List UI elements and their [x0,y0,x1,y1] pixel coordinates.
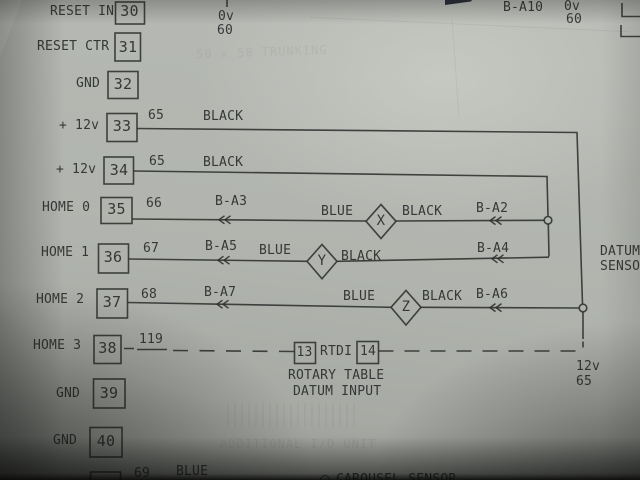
terminal-number-35: 35 [101,202,132,218]
right-edge-bracket-2 [621,25,640,37]
terminal-label-reset-ctr: RESET CTR [37,40,109,54]
terminal-number-33: 33 [107,119,137,135]
supply-wire-65-label: 65 [576,375,592,389]
wire-number-68: 68 [141,288,157,302]
carousel-sensor-note: CAROUSEL SENSOR [336,473,456,480]
wire-tag-b-a2: B-A2 [476,202,508,216]
wire-number-65-a: 65 [148,109,164,123]
wire-number-67: 67 [143,242,159,256]
top-stub-0v-label: 0v [218,10,234,24]
terminal-label-home-1: HOME 1 [41,246,89,260]
wire-color-black-z: BLACK [422,290,462,304]
sensor-x-letter: X [366,214,396,229]
wire-color-blue-bottom: BLUE [176,465,208,479]
wire-home3-stub [124,349,167,350]
rtdi-number-14: 14 [357,345,379,359]
wire-tag-b-a7: B-A7 [204,286,236,300]
rtdi-caption-line1: ROTARY TABLE [288,369,384,383]
wire-number-69: 69 [134,467,150,480]
wire-color-blue-z: BLUE [343,290,375,304]
terminal-number-36: 36 [98,250,128,266]
terminal-label-gnd-40: GND [53,434,77,448]
top-right-wire-number: 60 [566,13,582,27]
terminal-number-39: 39 [93,386,125,402]
wires [124,0,640,352]
terminal-label-home-2: HOME 2 [36,293,84,307]
terminal-label-gnd-32: GND [76,77,100,91]
wire-color-black-y: BLACK [341,250,381,264]
wire-color-blue-x: BLUE [321,205,353,219]
rtdi-caption-line2: DATUM INPUT [293,385,381,399]
wire-number-119: 119 [139,333,163,347]
terminal-number-32: 32 [108,77,138,93]
wire-tag-b-a3: B-A3 [215,195,247,209]
carousel-note-bullet-icon [320,475,330,480]
terminal-box-41-partial [91,472,121,480]
node-b-a6 [579,304,587,312]
wire-color-black-a: BLACK [203,110,243,124]
wire-home1 [129,257,550,261]
wiring-diagram-photo: 50 x 50 TRUNKING ADDITIONAL I/O UNIT [0,0,640,480]
sensor-y-letter: Y [307,254,337,269]
terminal-label-home-0: HOME 0 [42,201,90,215]
terminal-number-37: 37 [97,295,127,311]
terminal-label-12v-33: + 12v [59,119,99,133]
wire-color-black-x: BLACK [402,205,442,219]
node-b-a2 [544,217,552,225]
wire-number-65-b: 65 [149,155,165,169]
terminal-number-34: 34 [104,163,134,179]
wire-tag-b-a4: B-A4 [477,242,509,256]
rtdi-label: RTDI [320,345,352,359]
terminal-label-gnd-39: GND [56,387,80,401]
rtdi-dashed-left [173,351,294,352]
wire-color-black-b: BLACK [203,156,243,170]
wire-number-66: 66 [146,197,162,211]
terminal-number-30: 30 [115,4,144,20]
terminal-label-12v-34: + 12v [56,163,96,177]
terminal-number-31: 31 [115,40,141,56]
schematic-linework [0,0,640,480]
wire-color-blue-y: BLUE [259,244,291,258]
datum-sensor-note-line2: SENSOR [600,260,640,274]
supply-12v-label: 12v [576,360,600,374]
rtdi-dashed-right [379,342,584,352]
sensor-z-letter: Z [391,300,421,315]
terminal-label-reset-in: RESET IN [50,5,114,19]
top-stub-wire-number: 60 [217,24,233,38]
wire-tag-b-a5: B-A5 [205,240,237,254]
top-b-a10-label: B-A10 [503,1,543,15]
rtdi-number-13: 13 [294,346,315,360]
wire-tag-b-a6: B-A6 [476,288,508,302]
terminal-number-40: 40 [90,434,122,450]
terminal-label-home-3: HOME 3 [33,339,81,353]
terminal-number-38: 38 [94,341,121,357]
wire-home0 [132,219,544,221]
right-edge-bracket-1 [622,3,640,17]
datum-sensor-note-line1: DATUM [600,245,640,259]
